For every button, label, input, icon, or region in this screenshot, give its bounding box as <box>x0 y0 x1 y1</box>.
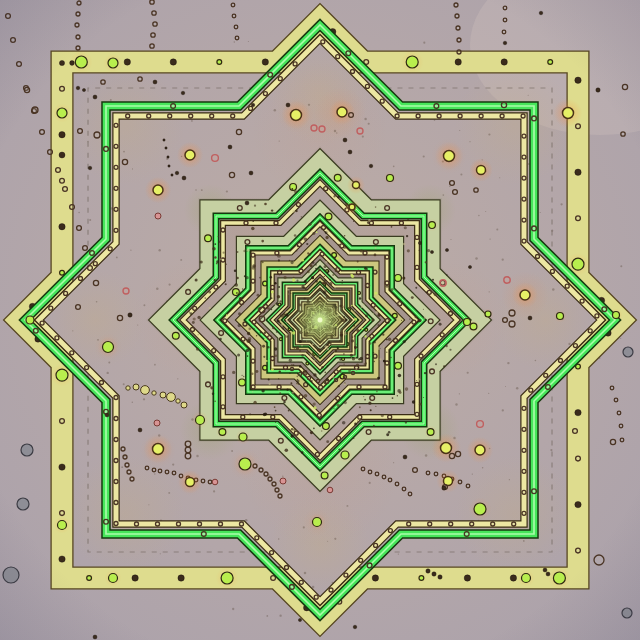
dark-dot <box>510 575 516 581</box>
speck <box>339 359 341 361</box>
speck <box>168 283 170 285</box>
hollow-ring-dot <box>617 411 621 415</box>
speck <box>352 336 354 338</box>
hollow-ring-dot <box>294 431 298 435</box>
hollow-ring-dot <box>407 522 411 526</box>
hollow-ring-dot <box>278 77 282 81</box>
speck <box>290 382 292 384</box>
speck <box>279 615 281 617</box>
speck <box>302 259 305 262</box>
hollow-ring-dot <box>241 415 245 419</box>
hollow-ring-dot <box>299 269 303 273</box>
hollow-ring-dot <box>185 453 191 459</box>
speck <box>97 339 99 341</box>
lime-dot <box>205 235 212 242</box>
octagram-star-artwork <box>0 0 640 640</box>
speck <box>72 330 73 331</box>
speck <box>190 312 193 315</box>
dark-dot <box>70 61 75 66</box>
speck <box>292 210 295 213</box>
dark-dot <box>372 575 378 581</box>
speck <box>306 243 308 245</box>
dark-dot <box>432 572 436 576</box>
hollow-ring-dot <box>177 522 181 526</box>
hollow-ring-dot <box>32 107 38 113</box>
speck <box>446 274 447 275</box>
speck <box>253 401 256 404</box>
speck <box>354 356 356 358</box>
bead-dot <box>133 384 139 390</box>
speck <box>356 343 358 345</box>
speck <box>304 238 308 242</box>
speck <box>296 379 299 382</box>
speck <box>301 216 302 217</box>
speck <box>226 314 228 316</box>
speck <box>274 304 276 306</box>
speck <box>280 314 282 316</box>
speck <box>373 352 375 354</box>
speck <box>321 430 323 432</box>
hollow-ring-dot <box>602 307 607 312</box>
speck <box>283 401 286 404</box>
glow-dot <box>353 182 360 189</box>
dark-dot <box>59 132 65 138</box>
hollow-ring-dot <box>434 104 439 109</box>
hollow-ring-dot <box>351 70 355 74</box>
speck <box>219 338 222 341</box>
hollow-ring-dot <box>325 380 328 383</box>
speck <box>350 354 353 357</box>
speck <box>296 280 298 282</box>
hollow-ring-dot <box>83 246 88 251</box>
speck <box>247 355 249 357</box>
speck <box>236 277 238 279</box>
lime-dot <box>321 472 328 479</box>
speck <box>355 368 357 370</box>
hollow-ring-dot <box>415 382 419 386</box>
speck <box>160 553 161 554</box>
bead-dot <box>181 402 187 408</box>
hollow-ring-dot <box>114 459 118 463</box>
speck <box>268 474 270 476</box>
pink-ring-dot <box>504 277 510 283</box>
speck <box>388 431 391 434</box>
speck <box>364 399 366 401</box>
lime-dot <box>464 319 471 326</box>
speck <box>528 95 529 96</box>
speck <box>240 291 242 293</box>
speck <box>364 363 366 365</box>
speck <box>269 383 271 385</box>
hollow-ring-dot <box>165 470 169 474</box>
speck <box>311 276 314 279</box>
speck <box>276 331 278 333</box>
speck <box>234 41 236 43</box>
speck <box>281 324 283 326</box>
speck <box>358 367 359 368</box>
speck <box>402 277 405 280</box>
hollow-ring-dot <box>152 468 156 472</box>
speck <box>354 346 357 349</box>
speck <box>324 265 327 268</box>
speck <box>359 425 362 428</box>
speck <box>313 289 315 291</box>
dark-dot <box>59 152 65 158</box>
speck <box>244 313 245 314</box>
pink-ring-dot <box>440 280 446 286</box>
speck <box>275 410 277 412</box>
hollow-ring-dot <box>108 247 112 251</box>
speck <box>296 376 298 378</box>
hollow-ring-dot <box>104 519 109 524</box>
speck <box>307 252 309 254</box>
speck <box>243 250 245 252</box>
lime-dot <box>557 313 564 320</box>
speck <box>237 353 240 356</box>
gray-dot <box>3 567 19 583</box>
speck <box>391 288 394 291</box>
hollow-ring-dot <box>365 84 369 88</box>
hollow-ring-dot <box>380 99 384 103</box>
hollow-ring-dot <box>271 415 275 419</box>
lime-dot <box>395 275 402 282</box>
speck <box>264 331 266 333</box>
speck <box>393 462 394 463</box>
speck <box>342 283 343 284</box>
dark-dot <box>455 59 461 65</box>
lime-dot <box>57 108 67 118</box>
hollow-ring-dot <box>621 132 625 136</box>
dark-dot <box>464 575 470 581</box>
lime-dot <box>109 574 118 583</box>
speck <box>369 482 371 484</box>
hollow-ring-dot <box>464 532 469 537</box>
hollow-ring-dot <box>522 406 526 410</box>
hollow-ring-dot <box>395 482 399 486</box>
hollow-ring-dot <box>457 50 461 54</box>
speck <box>189 311 190 312</box>
speck <box>143 304 145 306</box>
hollow-ring-dot <box>93 262 97 266</box>
bead-dot <box>126 386 130 390</box>
speck <box>386 433 389 436</box>
hollow-ring-dot <box>416 114 420 118</box>
speck <box>502 409 504 411</box>
dark-dot <box>501 59 507 65</box>
speck <box>137 324 138 325</box>
hollow-ring-dot <box>299 580 303 584</box>
hollow-ring-dot <box>588 329 592 333</box>
speck <box>377 314 380 317</box>
speck <box>550 449 552 451</box>
hollow-ring-dot <box>456 26 460 30</box>
speck <box>388 337 391 340</box>
speck <box>291 188 293 190</box>
speck <box>210 386 213 389</box>
hollow-ring-dot <box>17 62 22 67</box>
speck <box>317 349 319 351</box>
hollow-ring-dot <box>454 3 458 7</box>
speck <box>294 234 297 237</box>
hollow-ring-dot <box>171 104 176 109</box>
speck <box>293 364 295 366</box>
hollow-ring-dot <box>76 305 81 310</box>
speck <box>364 329 365 330</box>
hollow-ring-dot <box>75 23 79 27</box>
speck <box>312 360 315 363</box>
dark-dot <box>59 556 65 562</box>
speck <box>216 263 218 265</box>
hollow-ring-dot <box>576 216 581 221</box>
speck <box>263 413 266 416</box>
hollow-ring-dot <box>522 511 526 515</box>
salmon-dot <box>280 478 286 484</box>
dark-dot <box>59 224 65 230</box>
hollow-ring-dot <box>221 375 225 379</box>
hollow-ring-dot <box>11 38 16 43</box>
speck <box>313 406 316 409</box>
hollow-ring-dot <box>240 300 244 304</box>
speck <box>478 215 479 216</box>
hollow-ring-dot <box>210 114 214 118</box>
speck <box>449 186 450 187</box>
speck <box>195 189 197 191</box>
hollow-ring-dot <box>259 316 265 322</box>
lime-dot <box>75 56 87 68</box>
dark-dot <box>426 569 430 573</box>
speck <box>344 364 345 365</box>
hollow-ring-dot <box>343 375 346 378</box>
speck <box>244 275 246 277</box>
hollow-ring-dot <box>522 155 526 159</box>
lime-dot <box>387 175 394 182</box>
hollow-ring-dot <box>94 132 100 138</box>
speck <box>236 292 238 294</box>
speck <box>226 263 228 265</box>
hollow-ring-dot <box>503 6 507 10</box>
hollow-ring-dot <box>24 87 29 92</box>
speck <box>502 259 504 261</box>
speck <box>344 401 347 404</box>
speck <box>154 473 156 475</box>
speck <box>620 338 621 339</box>
speck <box>403 243 406 246</box>
hollow-ring-dot <box>388 478 392 482</box>
hollow-ring-dot <box>595 314 599 318</box>
lime-dot <box>522 574 531 583</box>
speck <box>299 340 302 343</box>
speck <box>248 327 251 330</box>
speck <box>351 339 354 342</box>
lime-dot <box>485 311 491 317</box>
speck <box>339 371 341 373</box>
speck <box>412 400 415 403</box>
speck <box>305 288 307 290</box>
speck <box>398 374 401 377</box>
lime-dot <box>395 362 402 369</box>
hollow-ring-dot <box>126 114 130 118</box>
speck <box>368 402 371 405</box>
speck <box>172 463 174 465</box>
speck <box>78 212 80 214</box>
glow-dot <box>441 443 452 454</box>
hollow-ring-dot <box>470 522 474 526</box>
dark-dot <box>262 59 268 65</box>
speck <box>297 245 299 247</box>
dark-dot <box>181 91 185 95</box>
hollow-ring-dot <box>114 501 118 505</box>
speck <box>274 406 276 408</box>
speck <box>302 389 303 390</box>
hollow-ring-dot <box>156 522 160 526</box>
speck <box>425 261 427 263</box>
hollow-ring-dot <box>251 385 255 389</box>
dark-dot <box>528 316 532 320</box>
hollow-ring-dot <box>458 114 462 118</box>
hollow-ring-dot <box>521 114 525 118</box>
speck <box>272 327 274 329</box>
speck <box>380 358 382 360</box>
hollow-ring-dot <box>395 114 399 118</box>
hollow-ring-dot <box>60 86 65 91</box>
speck <box>108 361 110 363</box>
speck <box>303 526 305 528</box>
hollow-ring-dot <box>450 181 455 186</box>
hollow-ring-dot <box>90 251 95 256</box>
hollow-ring-dot <box>231 3 235 7</box>
speck <box>364 335 366 337</box>
hollow-ring-dot <box>321 40 325 44</box>
speck <box>261 389 264 392</box>
speck <box>270 211 271 212</box>
speck <box>333 195 335 197</box>
speck <box>311 380 313 382</box>
speck <box>299 365 302 368</box>
hollow-ring-dot <box>114 207 118 211</box>
hollow-ring-dot <box>251 359 255 363</box>
glow-dot <box>337 107 347 117</box>
hollow-ring-dot <box>63 187 68 192</box>
speck <box>264 203 267 206</box>
speck <box>312 261 315 264</box>
hollow-ring-dot <box>334 370 338 374</box>
lime-dot <box>572 258 584 270</box>
speck <box>332 274 334 276</box>
hollow-ring-dot <box>264 472 268 476</box>
bead-dot <box>167 393 176 402</box>
speck <box>434 293 437 296</box>
hollow-ring-dot <box>231 114 235 118</box>
speck <box>263 323 264 324</box>
speck <box>262 261 264 263</box>
speck <box>313 427 315 429</box>
hollow-ring-dot <box>349 113 354 118</box>
hollow-ring-dot <box>104 147 109 152</box>
speck <box>192 321 195 324</box>
hollow-ring-dot <box>296 203 300 207</box>
speck <box>212 392 214 394</box>
hollow-ring-dot <box>275 251 279 255</box>
speck <box>348 369 351 372</box>
speck <box>505 386 506 387</box>
speck <box>252 266 255 269</box>
dark-dot <box>178 575 184 581</box>
lime-dot <box>548 60 553 65</box>
speck <box>342 421 346 425</box>
hollow-ring-dot <box>522 448 526 452</box>
speck <box>251 373 253 375</box>
speck <box>256 335 257 336</box>
speck <box>499 177 500 178</box>
hollow-ring-dot <box>114 228 118 232</box>
speck <box>368 337 371 340</box>
speck <box>324 269 326 271</box>
dark-dot <box>575 77 581 83</box>
hollow-ring-dot <box>127 470 131 474</box>
speck <box>354 310 356 312</box>
speck <box>419 250 420 251</box>
hollow-ring-dot <box>229 172 234 177</box>
lime-dot <box>221 572 233 584</box>
hollow-ring-dot <box>428 522 432 526</box>
hollow-ring-dot <box>277 385 281 389</box>
hollow-ring-dot <box>268 477 272 481</box>
speck <box>374 292 377 295</box>
speck <box>406 235 408 237</box>
hollow-ring-dot <box>251 253 255 257</box>
speck <box>292 278 296 282</box>
dark-dot <box>418 241 421 244</box>
hollow-ring-dot <box>168 114 172 118</box>
hollow-ring-dot <box>398 302 402 306</box>
lime-dot <box>108 58 118 68</box>
dark-dot <box>575 169 581 175</box>
speck <box>312 402 315 405</box>
speck <box>375 311 378 314</box>
speck <box>449 349 451 351</box>
hollow-ring-dot <box>76 46 80 50</box>
speck <box>286 389 288 391</box>
hollow-ring-dot <box>500 114 504 118</box>
lime-dot <box>219 429 226 436</box>
speck <box>552 288 555 291</box>
hollow-ring-dot <box>512 522 516 526</box>
hollow-ring-dot <box>340 244 344 248</box>
hollow-ring-dot <box>290 367 293 370</box>
hollow-ring-dot <box>33 328 38 333</box>
speck <box>337 404 340 407</box>
speck <box>333 408 334 409</box>
hollow-ring-dot <box>358 415 362 419</box>
hollow-ring-dot <box>501 102 506 107</box>
speck <box>293 346 295 348</box>
speck <box>296 210 298 212</box>
speck <box>292 331 295 334</box>
speck <box>335 269 338 272</box>
speck <box>414 316 417 319</box>
speck <box>540 212 541 213</box>
hollow-ring-dot <box>151 33 155 37</box>
speck <box>344 307 345 308</box>
speck <box>195 278 198 281</box>
speck <box>485 211 486 212</box>
speck <box>316 231 318 233</box>
glow-dot <box>563 108 574 119</box>
hollow-ring-dot <box>336 55 340 59</box>
hollow-ring-dot <box>206 382 211 387</box>
dark-dot <box>546 572 550 576</box>
speck <box>271 309 272 310</box>
